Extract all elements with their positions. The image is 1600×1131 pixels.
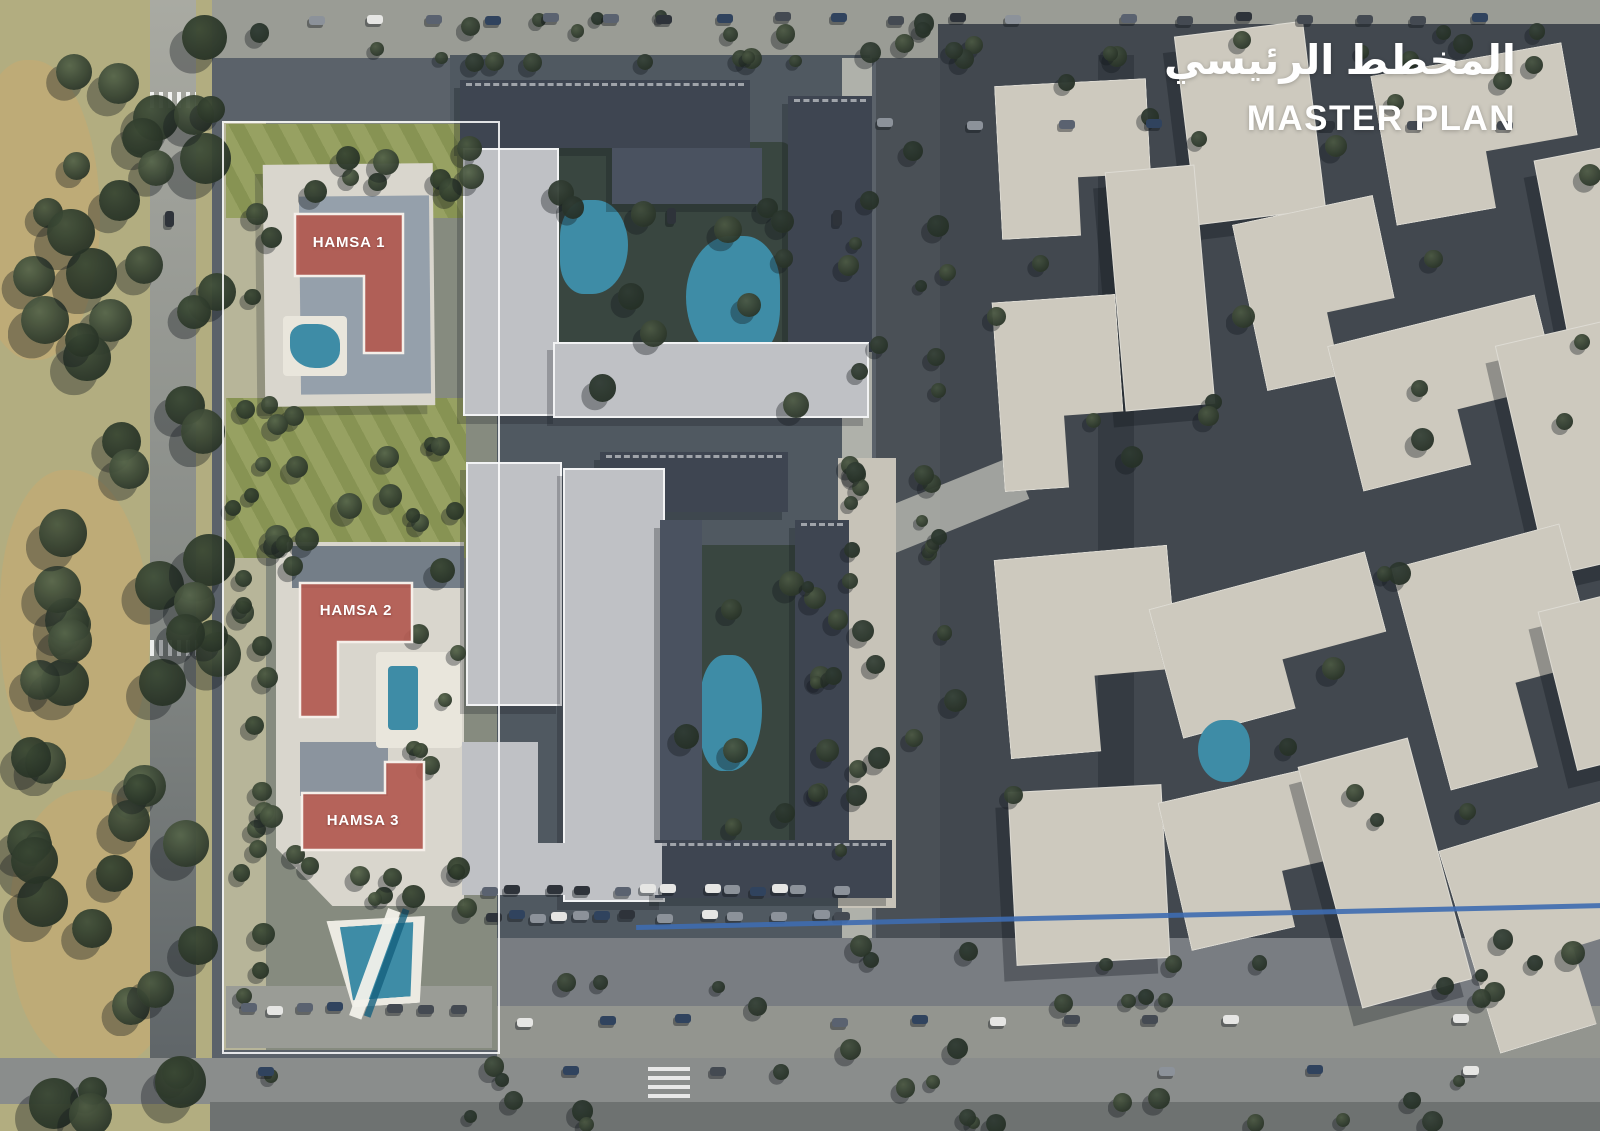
tree: [125, 774, 156, 805]
car: [1357, 15, 1373, 24]
tree: [246, 203, 267, 224]
tree: [1121, 994, 1136, 1009]
tree: [1424, 250, 1443, 269]
car: [426, 15, 442, 24]
tree: [905, 729, 923, 747]
car: [814, 910, 830, 919]
car: [724, 885, 740, 894]
tree: [459, 164, 483, 188]
tree: [1113, 1093, 1132, 1112]
tree: [261, 227, 282, 248]
car: [1297, 15, 1313, 24]
crosswalk: [648, 1062, 690, 1098]
car: [267, 1006, 283, 1015]
hamsa-2-label: HAMSA 2: [300, 602, 412, 619]
tree: [851, 363, 868, 380]
car: [1453, 1014, 1469, 1023]
building: [563, 468, 665, 902]
car: [675, 1014, 691, 1023]
car: [710, 1067, 726, 1076]
plan-title-arabic: المخطط الرئيسي: [1164, 38, 1516, 83]
tree: [579, 1117, 595, 1131]
tree: [712, 981, 725, 994]
tree: [986, 1114, 1006, 1131]
tree: [368, 892, 382, 906]
car: [967, 121, 983, 130]
tree: [571, 24, 584, 37]
tree: [485, 52, 504, 71]
car: [563, 1066, 579, 1075]
tree: [937, 625, 953, 641]
car: [1472, 13, 1488, 22]
car: [573, 911, 589, 920]
car: [750, 887, 766, 896]
tree: [276, 535, 294, 553]
tree: [1103, 46, 1118, 61]
tree: [450, 645, 466, 661]
tree: [838, 255, 858, 275]
tree: [255, 457, 271, 473]
car: [1064, 1015, 1080, 1024]
car: [485, 16, 501, 25]
tree: [915, 280, 927, 292]
tree: [1336, 1113, 1350, 1127]
tree: [435, 52, 448, 65]
tree: [1529, 23, 1546, 40]
plan-title-english: MASTER PLAN: [1164, 99, 1516, 139]
car: [1159, 1067, 1175, 1076]
tree: [225, 500, 241, 516]
tree: [96, 855, 132, 891]
tree: [802, 581, 814, 593]
tree: [816, 739, 838, 761]
tree: [844, 542, 860, 558]
tree: [11, 837, 58, 884]
tree: [350, 866, 370, 886]
courtyard-pool: [1198, 720, 1250, 782]
building: [463, 148, 559, 416]
tree: [1058, 74, 1075, 91]
tree: [915, 22, 931, 38]
car: [771, 912, 787, 921]
tree: [457, 136, 482, 161]
tree: [125, 246, 163, 284]
tree: [17, 876, 68, 927]
tree: [450, 864, 465, 879]
tree: [304, 180, 327, 203]
car: [660, 884, 676, 893]
car: [832, 1018, 848, 1027]
tree: [250, 23, 269, 42]
tree: [1574, 334, 1590, 350]
tree: [163, 820, 209, 866]
car: [705, 884, 721, 893]
car: [657, 914, 673, 923]
building: [612, 148, 762, 204]
building: [660, 520, 702, 842]
tree: [927, 348, 945, 366]
tree: [850, 935, 872, 957]
tree: [72, 909, 111, 948]
tree: [896, 1078, 916, 1098]
tree: [13, 256, 54, 297]
car: [1410, 16, 1426, 25]
car: [482, 887, 498, 896]
tree: [342, 169, 359, 186]
car: [297, 1003, 313, 1012]
car: [1146, 119, 1162, 128]
car: [258, 1067, 274, 1076]
tree: [835, 844, 847, 856]
car: [1236, 12, 1252, 21]
tree: [1165, 955, 1182, 972]
tree: [846, 785, 867, 806]
tree: [775, 803, 795, 823]
tree: [465, 53, 484, 72]
car: [950, 13, 966, 22]
south-sidewalk: [497, 1006, 1600, 1060]
car: [702, 910, 718, 919]
tree: [828, 609, 849, 630]
car: [833, 210, 842, 226]
building: [1008, 784, 1171, 966]
tree: [776, 24, 795, 43]
car: [727, 912, 743, 921]
tree: [235, 597, 252, 614]
tree: [748, 997, 767, 1016]
tree: [301, 857, 318, 874]
tree: [723, 27, 738, 42]
car: [327, 1002, 343, 1011]
car: [486, 913, 502, 922]
tree: [370, 42, 384, 56]
tree: [183, 534, 235, 586]
tree: [109, 449, 149, 489]
tree: [34, 566, 80, 612]
tree: [244, 289, 261, 306]
tree: [1472, 989, 1491, 1008]
tree: [846, 462, 865, 481]
tree: [457, 898, 477, 918]
tree: [39, 509, 87, 557]
building: [788, 96, 872, 352]
tree: [825, 667, 842, 684]
car: [165, 211, 174, 227]
tree: [461, 17, 480, 36]
tree: [618, 283, 645, 310]
car: [667, 208, 676, 224]
tree: [959, 1109, 976, 1126]
tree: [808, 784, 825, 801]
hamsa-3-building: HAMSA 3: [300, 760, 426, 852]
tree: [947, 1038, 968, 1059]
car: [656, 15, 672, 24]
tree: [1556, 413, 1573, 430]
car: [619, 910, 635, 919]
tree: [99, 180, 140, 221]
tree: [849, 760, 867, 778]
tree: [987, 307, 1006, 326]
tree: [1032, 255, 1049, 272]
tree: [495, 1073, 508, 1086]
tree: [379, 484, 402, 507]
car: [509, 910, 525, 919]
tree: [406, 508, 420, 522]
lap-pool: [313, 914, 431, 1010]
tree: [523, 53, 542, 72]
tree: [286, 456, 308, 478]
car: [1005, 15, 1021, 24]
car: [530, 914, 546, 923]
tree: [1252, 955, 1268, 971]
building: [460, 80, 750, 148]
tree: [842, 573, 858, 589]
tree: [557, 973, 576, 992]
tree: [860, 191, 879, 210]
car: [574, 886, 590, 895]
tree: [252, 962, 269, 979]
tree: [1247, 1114, 1265, 1131]
tree: [725, 818, 743, 836]
hamsa-3-shape: [300, 760, 426, 852]
car: [990, 1017, 1006, 1026]
hamsa-2-building: HAMSA 2: [298, 581, 414, 719]
tree: [674, 724, 699, 749]
tree: [737, 293, 761, 317]
tree: [1436, 977, 1454, 995]
hamsa-3-label: HAMSA 3: [302, 812, 424, 829]
tree: [773, 1064, 789, 1080]
tree: [714, 216, 741, 243]
tree: [56, 54, 92, 90]
tree: [1422, 1111, 1443, 1131]
car: [877, 118, 893, 127]
tree: [430, 558, 455, 583]
tree: [1561, 941, 1585, 965]
car: [888, 16, 904, 25]
car: [517, 1018, 533, 1027]
tree: [166, 614, 205, 653]
car: [387, 1004, 403, 1013]
car: [790, 885, 806, 894]
tree: [789, 55, 802, 68]
car: [1059, 120, 1075, 129]
bottom-road: [0, 1058, 1600, 1104]
tree: [65, 323, 99, 357]
tree: [48, 619, 91, 662]
tree: [413, 743, 428, 758]
tree: [138, 150, 174, 186]
car: [775, 12, 791, 21]
tree: [178, 926, 218, 966]
tree: [589, 374, 617, 402]
tree: [779, 571, 804, 596]
car: [772, 884, 788, 893]
tree: [1158, 993, 1173, 1008]
hamsa-1-label: HAMSA 1: [295, 234, 403, 251]
car: [594, 911, 610, 920]
car: [1463, 1066, 1479, 1075]
tree: [261, 396, 279, 414]
car: [418, 1005, 434, 1014]
car: [1223, 1015, 1239, 1024]
tree: [20, 660, 60, 700]
car: [1121, 14, 1137, 23]
tree: [927, 215, 949, 237]
car: [1177, 16, 1193, 25]
tree: [721, 599, 742, 620]
car: [603, 14, 619, 23]
tree: [252, 782, 272, 802]
tree: [1403, 1092, 1420, 1109]
car: [717, 14, 733, 23]
car: [1142, 1015, 1158, 1024]
tree: [1475, 969, 1488, 982]
tree: [69, 1093, 112, 1131]
tree: [260, 805, 283, 828]
tree: [180, 133, 232, 185]
car: [1307, 1065, 1323, 1074]
tree: [252, 923, 274, 945]
tree: [1121, 446, 1143, 468]
tree: [868, 747, 889, 768]
building: [466, 462, 562, 706]
tree: [840, 1039, 861, 1060]
tree: [383, 868, 402, 887]
tree: [249, 840, 267, 858]
car: [543, 13, 559, 22]
tree: [181, 409, 225, 453]
tree: [446, 502, 464, 520]
tree: [376, 446, 398, 468]
car: [834, 886, 850, 895]
tree: [439, 178, 462, 201]
tree: [177, 295, 211, 329]
car: [504, 885, 520, 894]
car: [600, 1016, 616, 1025]
car: [241, 1003, 257, 1012]
tree: [252, 636, 272, 656]
tree: [337, 493, 363, 519]
tree: [1493, 929, 1514, 950]
tree: [283, 556, 303, 576]
tree: [63, 152, 90, 179]
lawn: [226, 398, 466, 558]
tree: [438, 693, 452, 707]
tree: [723, 738, 748, 763]
tree: [235, 570, 252, 587]
tree: [1579, 164, 1600, 187]
master-plan-render: HAMSA 1 HAMSA 2 HAMSA 3 المخطط الرئيسي M…: [0, 0, 1600, 1131]
car: [309, 16, 325, 25]
car: [547, 885, 563, 894]
tree: [197, 96, 224, 123]
bottom-verge: [210, 1102, 1600, 1131]
tree: [591, 12, 604, 25]
tree: [1099, 958, 1112, 971]
tree: [368, 173, 387, 192]
car: [551, 912, 567, 921]
tree: [1411, 380, 1428, 397]
hamsa-1-building: HAMSA 1: [293, 212, 405, 355]
tree: [47, 209, 94, 256]
tree: [866, 655, 885, 674]
tree: [593, 975, 608, 990]
car: [451, 1005, 467, 1014]
tree: [236, 988, 252, 1004]
car: [912, 1015, 928, 1024]
tree: [631, 201, 657, 227]
car: [367, 15, 383, 24]
car: [615, 887, 631, 896]
tree: [1138, 989, 1154, 1005]
tree: [373, 149, 399, 175]
plan-title: المخطط الرئيسي MASTER PLAN: [1164, 38, 1516, 139]
car: [831, 13, 847, 22]
tree: [108, 800, 150, 842]
tree: [939, 264, 956, 281]
tree: [562, 196, 584, 218]
tree: [402, 885, 425, 908]
tree: [895, 34, 914, 53]
car: [640, 884, 656, 893]
tree: [155, 1056, 206, 1107]
tree: [11, 737, 51, 777]
